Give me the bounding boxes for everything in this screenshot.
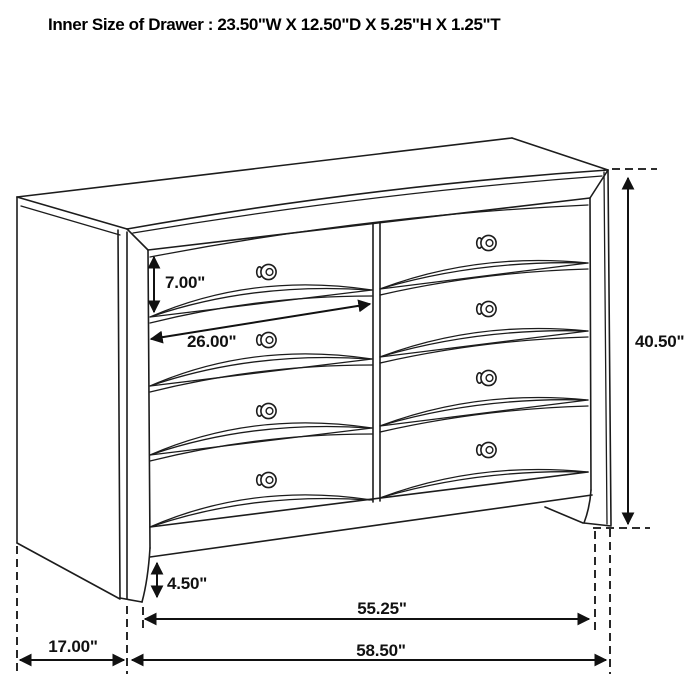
drawer-knobs <box>257 235 496 487</box>
dim-drawer-face-height: 7.00" <box>165 273 205 292</box>
drawer-knob-icon <box>257 403 276 418</box>
drawer-knob-icon <box>257 332 276 347</box>
dresser-top <box>17 138 608 250</box>
drawer-knob-icon <box>477 235 496 250</box>
dresser-drawing <box>17 138 611 602</box>
dim-base-clearance: 4.50" <box>167 574 207 593</box>
dresser-left-panel <box>17 197 127 599</box>
dresser-diagram-svg: 7.00" 26.00" 40.50" 4.50" 55.25" 17.00" … <box>0 0 700 700</box>
drawer-knob-icon <box>257 264 276 279</box>
drawer-knob-icon <box>477 442 496 457</box>
dresser-frame <box>148 170 611 548</box>
drawer-knob-icon <box>257 472 276 487</box>
drawer-lens-carvings <box>150 260 588 527</box>
arrow-drawer-front-width <box>151 304 370 339</box>
drawer-knob-icon <box>477 370 496 385</box>
dimension-arrows <box>20 178 628 660</box>
dim-overall-height: 40.50" <box>635 332 684 351</box>
drawer-knob-icon <box>477 301 496 316</box>
extension-lines <box>17 169 657 674</box>
dim-front-width-inner: 55.25" <box>357 599 406 618</box>
dim-drawer-front-width: 26.00" <box>187 332 236 351</box>
dimension-diagram: 7.00" 26.00" 40.50" 4.50" 55.25" 17.00" … <box>0 0 700 700</box>
dim-side-depth: 17.00" <box>48 637 97 656</box>
dim-overall-width: 58.50" <box>356 641 405 660</box>
page-title: Inner Size of Drawer : 23.50"W X 12.50"D… <box>48 15 501 34</box>
